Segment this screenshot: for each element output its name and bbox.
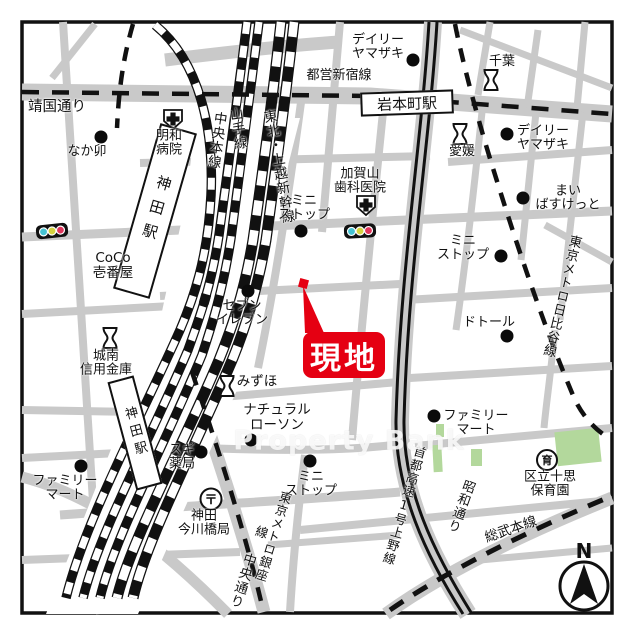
- station-label-iwamotocho: 岩本町駅: [377, 91, 438, 114]
- poi-dot-familymart-southwest: [75, 460, 88, 473]
- poi-label-seven-eleven: セブン イレブン: [216, 300, 268, 329]
- poi-label-daily-yamazaki-north: デイリー ヤマザキ: [352, 34, 404, 63]
- poi-label-kanda-imagawabashi-post: 神田 今川橋局: [178, 510, 230, 539]
- poi-dot-sugi-pharmacy: [195, 446, 208, 459]
- site-label: 現地: [310, 333, 378, 378]
- rail-label-toei-shinjuku: 都営新宿線: [306, 69, 371, 83]
- poi-label-ministop-east: ミニ ストップ: [437, 235, 489, 264]
- compass-n-label: N: [576, 539, 593, 563]
- poi-label-familymart-southwest: ファミリー マート: [32, 475, 97, 504]
- poi-dot-nakau: [95, 131, 108, 144]
- nursery-glyph: 育: [542, 453, 553, 467]
- nursery-icon: 育: [537, 450, 557, 470]
- poi-dot-maibasket: [517, 192, 530, 205]
- road-label-yasukuni-dori: 靖国通り: [28, 100, 86, 116]
- poi-label-doutor: ドトール: [463, 316, 515, 330]
- poi-label-kagayama-dental: 加賀山 歯科医院: [334, 168, 386, 197]
- poi-label-nakau: なか卯: [67, 145, 106, 159]
- poi-dot-daily-yamazaki-east: [501, 128, 514, 141]
- watermark: Property Bank: [233, 426, 465, 457]
- poi-dot-familymart-east: [428, 410, 441, 423]
- poi-label-coco-ichibanya: CoCo 壱番屋: [93, 251, 134, 281]
- poi-label-ministop-center: ミニ ストップ: [278, 195, 330, 224]
- poi-label-maibasket: まい ばすけっと: [535, 185, 600, 214]
- poi-dot-ministop-center: [295, 225, 308, 238]
- poi-label-mizuho: みずほ: [237, 375, 278, 390]
- poi-label-meiwa-hospital: 明和 病院: [156, 130, 182, 159]
- traffic-signal-center: [344, 223, 377, 239]
- poi-label-sugi-pharmacy: スギ 薬局: [169, 444, 195, 473]
- compass: [560, 562, 608, 610]
- poi-label-ministop-south: ミニ ストップ: [285, 471, 337, 500]
- poi-label-jonan-shinkin: 城南 信用金庫: [80, 350, 132, 379]
- poi-dot-doutor: [501, 330, 514, 343]
- poi-label-jisshi-nursery: 区立十思 保育園: [524, 471, 576, 500]
- map-drawing: 〒 育: [0, 0, 640, 640]
- poi-label-chiba-bank: 千葉: [489, 55, 515, 69]
- poi-dot-daily-yamazaki-north: [407, 54, 420, 67]
- map-canvas: 〒 育 岩本町駅 神田駅 神田駅 靖国通り 都営新宿線 中央本線 山手線 東北・…: [0, 0, 640, 640]
- poi-label-ehime-bank: 愛媛: [449, 145, 475, 159]
- station-box-iwamotocho: 岩本町駅: [360, 89, 454, 116]
- poi-label-daily-yamazaki-east: デイリー ヤマザキ: [517, 125, 569, 154]
- park-block: [554, 428, 601, 466]
- poi-dot-ministop-east: [495, 250, 508, 263]
- post-office-icon: 〒: [201, 489, 222, 510]
- poi-dot-seven-eleven: [242, 285, 255, 298]
- site-callout: 現地: [303, 332, 385, 378]
- post-office-glyph: 〒: [204, 493, 217, 508]
